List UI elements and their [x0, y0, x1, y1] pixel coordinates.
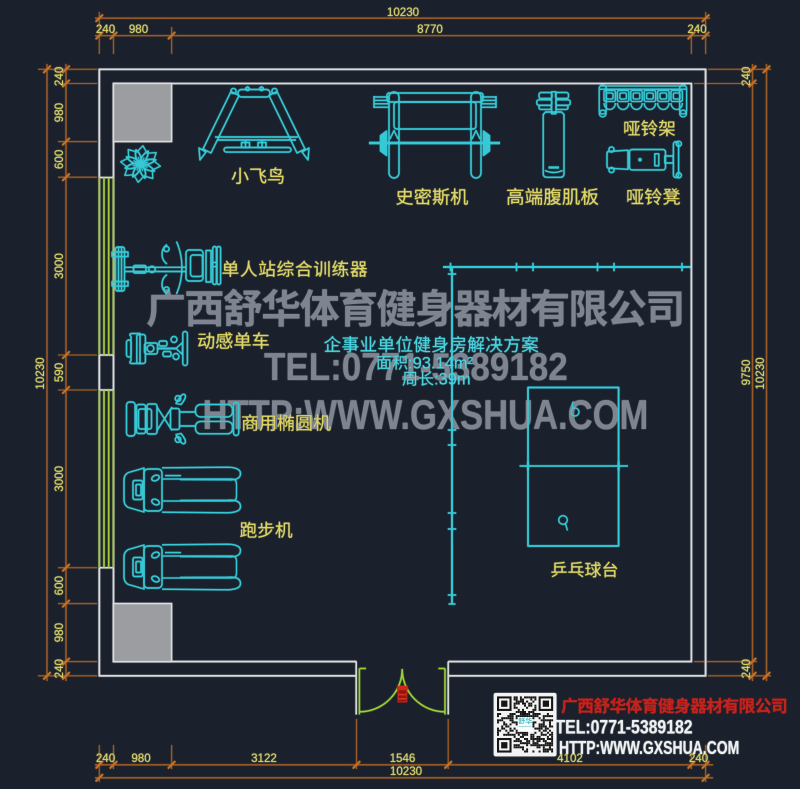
svg-text:1546: 1546: [390, 752, 416, 765]
svg-text:10230: 10230: [387, 6, 419, 19]
svg-text::39m: :39m: [434, 371, 471, 389]
svg-text:10230: 10230: [34, 357, 47, 389]
svg-text:240: 240: [740, 67, 753, 86]
svg-text:240: 240: [53, 659, 66, 678]
svg-text:240: 240: [96, 752, 115, 765]
svg-text:590: 590: [53, 363, 66, 382]
svg-text:240: 240: [96, 23, 115, 36]
svg-text:10230: 10230: [754, 357, 767, 389]
svg-text:10230: 10230: [390, 765, 422, 778]
svg-text:600: 600: [53, 150, 66, 169]
svg-text:240: 240: [740, 659, 753, 678]
svg-text:HTTP:WWW.GXSHUA.COM: HTTP:WWW.GXSHUA.COM: [203, 392, 649, 439]
svg-text:240: 240: [53, 67, 66, 86]
svg-text:3000: 3000: [53, 466, 66, 492]
svg-text:9750: 9750: [740, 360, 753, 386]
svg-text:8770: 8770: [417, 23, 443, 36]
svg-text:980: 980: [53, 103, 66, 122]
svg-text:3122: 3122: [251, 752, 277, 765]
svg-text:980: 980: [131, 752, 150, 765]
svg-text:980: 980: [53, 623, 66, 642]
svg-text:980: 980: [129, 23, 148, 36]
svg-text:600: 600: [53, 576, 66, 595]
svg-text:TEL:0771-5389182: TEL:0771-5389182: [556, 716, 693, 738]
svg-text:HTTP:WWW.GXSHUA.COM: HTTP:WWW.GXSHUA.COM: [559, 738, 739, 758]
svg-text:3000: 3000: [53, 253, 66, 279]
svg-text:240: 240: [687, 23, 706, 36]
